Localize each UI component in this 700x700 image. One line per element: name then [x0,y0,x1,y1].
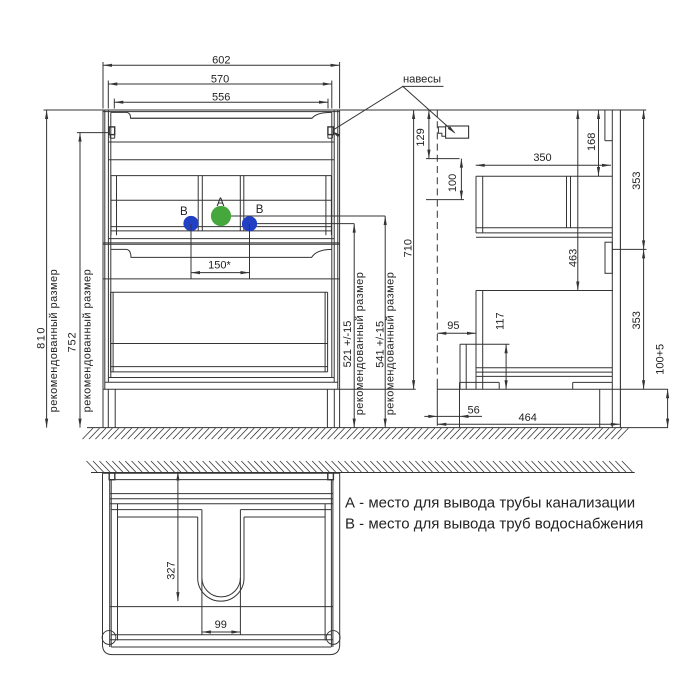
svg-text:100: 100 [447,174,459,192]
svg-text:710: 710 [402,239,414,257]
svg-text:95: 95 [447,320,459,332]
svg-text:327: 327 [166,561,178,579]
svg-text:602: 602 [212,54,230,66]
svg-text:рекомендованный размер: рекомендованный размер [48,269,60,413]
svg-text:129: 129 [415,128,427,146]
svg-text:556: 556 [212,91,230,103]
svg-text:99: 99 [215,619,227,631]
svg-text:150*: 150* [208,259,231,271]
svg-text:463: 463 [567,249,579,267]
svg-text:рекомендованный размер: рекомендованный размер [354,272,366,416]
svg-text:570: 570 [211,73,229,85]
svg-text:B: B [180,206,188,218]
svg-text:B: B [256,204,264,216]
svg-text:353: 353 [631,311,643,329]
svg-text:В - место для вывода труб водо: В - место для вывода труб водоснабжения [345,516,643,533]
svg-text:A: A [217,197,225,209]
svg-text:навесы: навесы [403,74,441,86]
svg-text:рекомендованный размер: рекомендованный размер [82,269,94,413]
svg-text:521 +/-15: 521 +/-15 [342,321,354,368]
svg-text:100+5: 100+5 [655,344,667,375]
svg-text:353: 353 [631,172,643,190]
svg-text:464: 464 [519,412,537,424]
svg-text:810: 810 [35,326,47,349]
svg-text:350: 350 [533,152,551,164]
svg-text:А - место для вывода трубы кан: А - место для вывода трубы канализации [345,495,635,512]
svg-text:168: 168 [586,133,598,151]
svg-text:117: 117 [495,312,507,330]
svg-text:752: 752 [67,332,79,353]
svg-text:56: 56 [467,405,479,417]
svg-text:рекомендованный размер: рекомендованный размер [385,272,397,416]
